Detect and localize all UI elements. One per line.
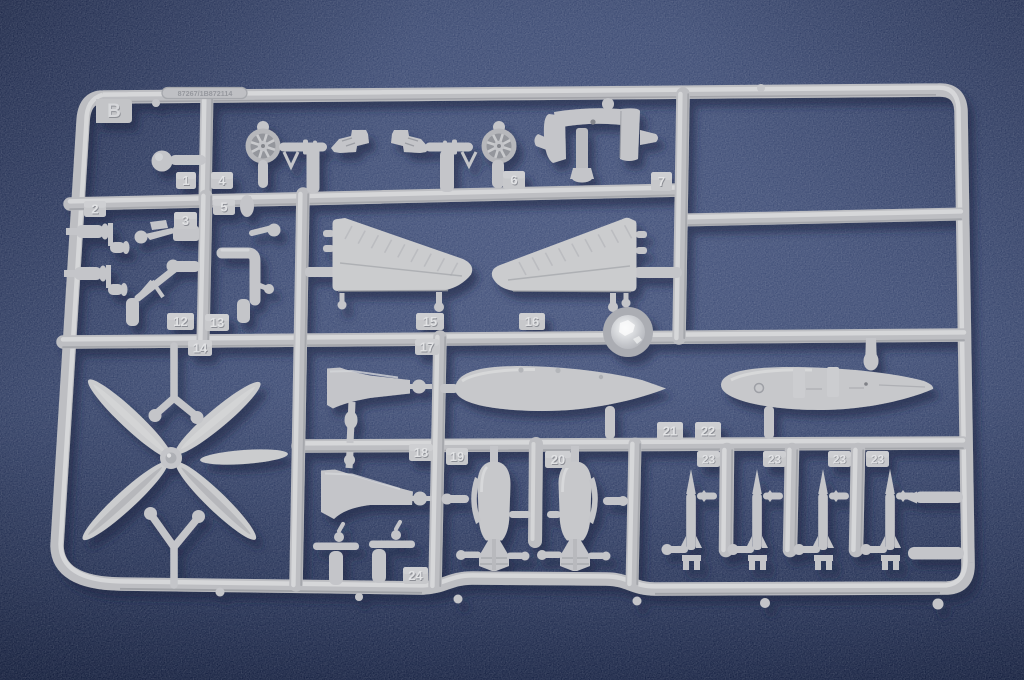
svg-text:15: 15 (423, 314, 437, 329)
svg-text:13: 13 (210, 315, 224, 330)
svg-text:24: 24 (408, 568, 423, 583)
svg-text:22: 22 (701, 424, 715, 439)
svg-text:21: 21 (663, 424, 677, 439)
svg-text:87267/1B872114: 87267/1B872114 (178, 89, 233, 98)
svg-text:1: 1 (182, 173, 189, 188)
svg-text:2: 2 (91, 202, 98, 217)
svg-text:17: 17 (420, 340, 434, 355)
svg-text:5: 5 (220, 200, 227, 215)
svg-text:23: 23 (833, 452, 847, 466)
svg-text:23: 23 (768, 452, 782, 466)
svg-text:7: 7 (658, 174, 665, 189)
svg-text:3: 3 (182, 213, 189, 228)
svg-text:20: 20 (551, 452, 565, 467)
svg-text:14: 14 (193, 341, 208, 356)
svg-text:16: 16 (525, 314, 539, 329)
svg-text:18: 18 (414, 445, 428, 460)
svg-text:4: 4 (218, 173, 226, 188)
svg-text:23: 23 (702, 452, 716, 466)
svg-text:12: 12 (173, 314, 187, 329)
svg-text:B: B (107, 101, 121, 122)
svg-text:6: 6 (510, 173, 517, 188)
svg-text:19: 19 (450, 449, 464, 464)
svg-text:23: 23 (871, 452, 885, 466)
